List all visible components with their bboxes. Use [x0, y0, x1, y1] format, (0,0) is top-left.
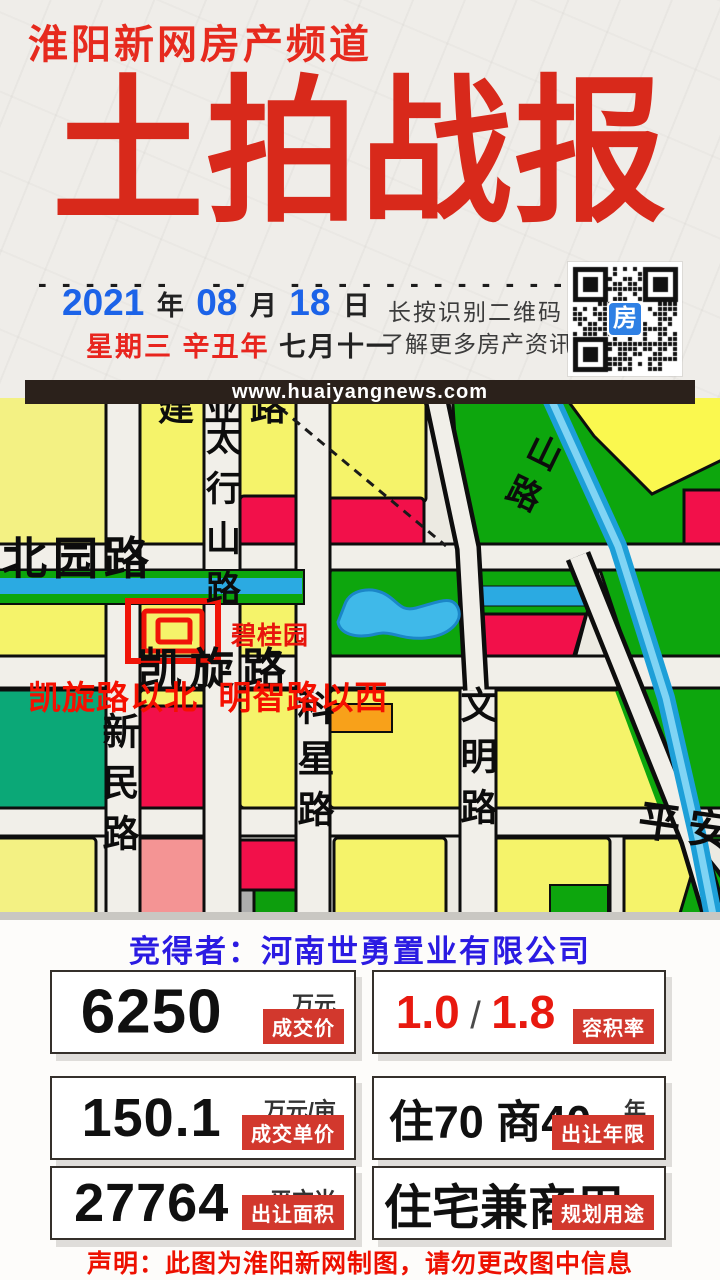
unit-price-badge: 成交单价: [242, 1115, 344, 1150]
weekday: 星期三: [86, 332, 173, 362]
qr-code[interactable]: 房: [568, 262, 682, 376]
date-year: 2021: [62, 282, 144, 323]
plot-ratio-separator: /: [470, 995, 481, 1037]
channel-title: 淮阳新网房产频道: [28, 12, 372, 70]
plot-ratio-min: 1.0: [396, 986, 460, 1038]
qr-center-logo: 房: [607, 301, 643, 337]
road-label-beiyuan: 北园路: [2, 536, 155, 581]
card-lease-term: 住70 商40 年 出让年限: [372, 1076, 666, 1160]
road-label-wenming: 文明路: [457, 686, 494, 839]
date-month-cn: 月: [250, 291, 277, 321]
winner-line: 竞得者：河南世勇置业有限公司: [0, 926, 720, 971]
date-year-cn: 年: [157, 291, 184, 321]
deal-price-value: 6250: [52, 977, 251, 1048]
card-plot-ratio: 1.0 / 1.8 容积率: [372, 970, 666, 1054]
planned-use-badge: 规划用途: [552, 1195, 654, 1230]
website-url-bar: www.huaiyangnews.com: [25, 380, 695, 404]
road-label-taihangshan: 太行山路: [203, 420, 238, 620]
land-area-value: 27764: [52, 1172, 251, 1234]
road-label-xinmin: 新民路: [99, 712, 136, 865]
qr-hint-line1: 长按识别二维码: [388, 293, 563, 327]
date-day: 18: [289, 282, 330, 323]
parcel-location-caption: 凯旋路以北 明智路以西: [28, 681, 388, 714]
poster-title: 土拍战报: [0, 63, 720, 245]
lunar-date-line: 星期三 辛丑年 七月十一: [86, 325, 395, 364]
date-line: 2021 年 08 月 18 日: [62, 282, 378, 324]
card-planned-use: 住宅兼商用 规划用途: [372, 1166, 666, 1240]
planning-map: 建业路 太行山路 北园路 山路 凯旋路 碧桂园 新民路 科星路 文明路 平安 凯…: [0, 398, 720, 920]
place-label-biguiyuan: 碧桂园: [231, 624, 309, 649]
poster: 淮阳新网房产频道 土拍战报 - - - - - - - - - - - - - …: [0, 0, 720, 1280]
qr-hint-line2: 了解更多房产资讯: [381, 325, 573, 359]
card-deal-price: 6250 万元 成交价: [50, 970, 356, 1054]
land-area-badge: 出让面积: [242, 1195, 344, 1230]
unit-price-value: 150.1: [52, 1087, 251, 1149]
lease-term-badge: 出让年限: [552, 1115, 654, 1150]
disclaimer-line: 声明：此图为淮阳新网制图，请勿更改图中信息: [0, 1244, 720, 1280]
lunar-date: 七月十一: [279, 332, 395, 362]
plot-ratio-value: 1.0 / 1.8: [374, 985, 577, 1039]
date-day-cn: 日: [343, 291, 370, 321]
lunar-year: 辛丑年: [183, 332, 270, 362]
plot-ratio-max: 1.8: [491, 986, 555, 1038]
deal-price-badge: 成交价: [263, 1009, 344, 1044]
card-unit-price: 150.1 万元/亩 成交单价: [50, 1076, 356, 1160]
card-land-area: 27764 平方米 出让面积: [50, 1166, 356, 1240]
plot-ratio-badge: 容积率: [573, 1009, 654, 1044]
date-month: 08: [196, 282, 237, 323]
